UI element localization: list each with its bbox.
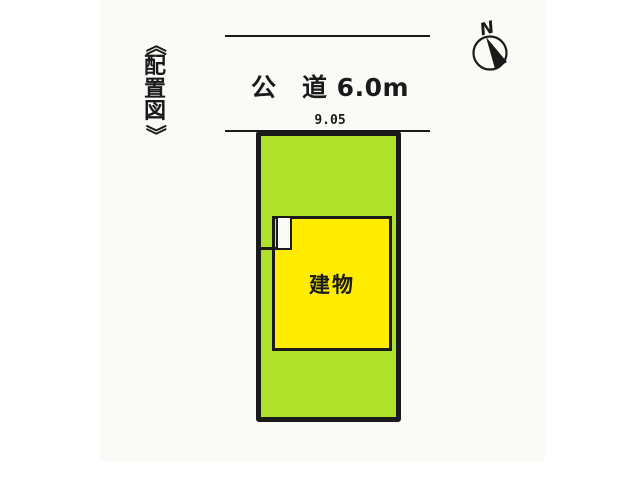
entrance-notch bbox=[276, 216, 292, 250]
road-north-edge-line bbox=[225, 35, 430, 37]
compass: N bbox=[464, 14, 518, 74]
site-layout-diagram: 《配置図》 公 道 6.0m 9.05 建物 N bbox=[0, 0, 640, 480]
boundary-tick-line bbox=[259, 247, 278, 250]
compass-needle-icon bbox=[486, 37, 507, 69]
frontage-dimension-label: 9.05 bbox=[302, 113, 358, 128]
road-label: 公 道 6.0m bbox=[250, 68, 410, 104]
building-label: 建物 bbox=[309, 269, 355, 299]
diagram-title: 《配置図》 bbox=[138, 34, 172, 146]
